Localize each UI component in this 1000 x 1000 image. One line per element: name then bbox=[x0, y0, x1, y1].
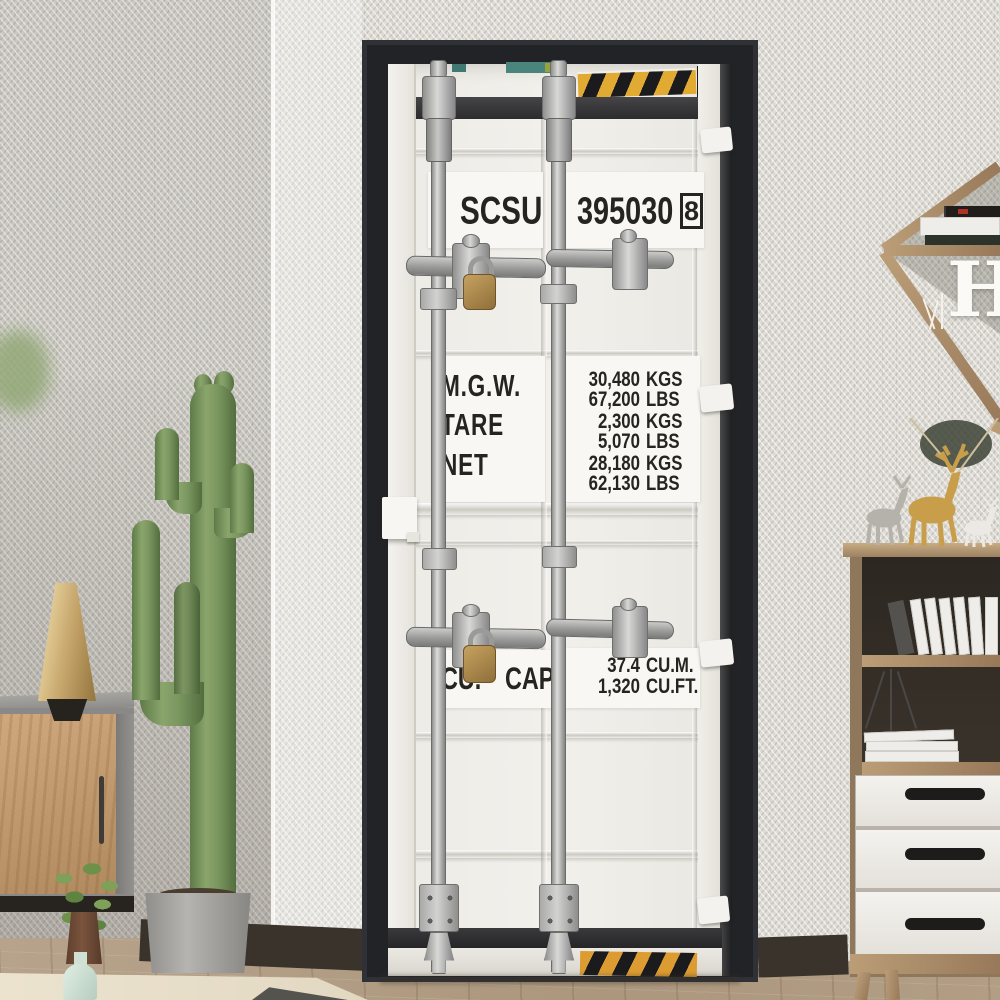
capacity-cubic-m-unit: CU.M. bbox=[646, 655, 698, 676]
cabinet-shelf-board bbox=[862, 655, 1000, 667]
lower-right-hasp bbox=[612, 606, 648, 658]
lock-rod-left bbox=[431, 66, 446, 972]
shelf-book-red-label bbox=[958, 209, 968, 214]
cactus-right-arm bbox=[230, 463, 254, 533]
upper-right-hasp-knob bbox=[620, 229, 637, 243]
cactus-left-long-arm bbox=[132, 520, 160, 700]
container-top-teal-1 bbox=[452, 64, 466, 72]
rod-right-bottom-bracket bbox=[539, 884, 579, 932]
capacity-units-column: CU.M. CU.FT. bbox=[646, 655, 698, 697]
weight-units-column: KGS LBS KGS LBS KGS LBS bbox=[646, 370, 682, 494]
lower-right-hasp-knob bbox=[620, 598, 637, 611]
rod-left-bottom-bracket bbox=[419, 884, 459, 932]
container-check-digit-box: 8 bbox=[680, 193, 703, 229]
cabinet-book-6 bbox=[985, 597, 998, 655]
lower-left-padlock-body bbox=[463, 645, 496, 683]
door-floor-shadow bbox=[380, 975, 740, 984]
capacity-label: CU. CAP. bbox=[441, 664, 558, 696]
drawer-1-handle bbox=[905, 788, 985, 800]
rod-left-upper-clamp bbox=[420, 288, 457, 310]
warning-tape-top bbox=[578, 68, 697, 98]
vase-mint-body bbox=[63, 964, 97, 1000]
upper-right-hasp bbox=[612, 238, 648, 290]
drawer-3-handle bbox=[905, 918, 985, 930]
cactus-pot bbox=[143, 893, 253, 973]
mgw-lbs-unit: LBS bbox=[646, 390, 682, 410]
cactus-left-upper-arm bbox=[155, 428, 179, 500]
container-owner-code: SCSU bbox=[460, 192, 542, 231]
sideboard-door-handle bbox=[99, 776, 104, 844]
rod-right-top-housing bbox=[542, 76, 576, 120]
rod-right-mid-clamp bbox=[542, 546, 577, 568]
net-kgs-unit: KGS bbox=[646, 454, 682, 474]
warning-tape-bottom bbox=[580, 951, 697, 977]
shelf-book-white bbox=[920, 217, 1000, 236]
upper-right-handle-bar bbox=[546, 249, 674, 269]
tare-lbs-value: 5,070 bbox=[570, 432, 640, 452]
rod-right-upper-clamp bbox=[540, 284, 577, 304]
silver-deer-figurine bbox=[867, 476, 910, 545]
capacity-cubic-ft-unit: CU.FT. bbox=[646, 676, 698, 697]
cabinet-drawer-top-board bbox=[862, 762, 1000, 775]
drawer-1 bbox=[856, 776, 1000, 826]
capacity-cubic-m-value: 37.4 bbox=[570, 655, 640, 676]
weight-values-column: 30,480 67,200 2,300 5,070 28,180 62,130 bbox=[570, 370, 640, 494]
deer-figurines bbox=[858, 418, 1000, 548]
lower-right-handle-bar bbox=[546, 618, 674, 639]
rod-right-top-hinge bbox=[546, 118, 572, 162]
upper-left-padlock-body bbox=[463, 274, 496, 310]
white-deer-figurine bbox=[965, 499, 997, 547]
door-hinge-tab-2 bbox=[699, 383, 735, 412]
drawer-2-handle bbox=[905, 848, 985, 860]
door-hinge-tab-4 bbox=[697, 895, 731, 924]
container-check-digit: 8 bbox=[684, 196, 699, 226]
mgw-kgs-value: 30,480 bbox=[570, 370, 640, 390]
net-lbs-unit: LBS bbox=[646, 474, 682, 494]
cabinet-leg-right bbox=[885, 970, 900, 1000]
upper-left-hasp-knob bbox=[462, 234, 480, 248]
capacity-values-column: 37.4 1,320 bbox=[570, 655, 640, 697]
door-right-shadow-gap bbox=[720, 64, 732, 976]
door-latch-lip bbox=[407, 532, 419, 542]
wire-bookend-mid bbox=[890, 669, 892, 731]
shelf-letter-decor: H bbox=[947, 252, 1000, 328]
cactus-front-arm bbox=[174, 582, 200, 694]
rod-left-mid-clamp bbox=[422, 548, 457, 570]
tare-kgs-value: 2,300 bbox=[570, 412, 640, 432]
rod-left-top-hinge bbox=[426, 118, 452, 162]
net-kgs-value: 28,180 bbox=[570, 454, 640, 474]
cabinet-base-board bbox=[850, 954, 1000, 974]
mgw-lbs-value: 67,200 bbox=[570, 390, 640, 410]
lower-left-hasp-knob bbox=[462, 604, 480, 617]
weight-label-tare: TARE bbox=[441, 411, 504, 441]
magazine-stack-mid bbox=[866, 741, 958, 751]
rod-left-top-housing bbox=[422, 76, 456, 120]
container-serial-number: 395030 bbox=[577, 192, 673, 230]
weight-label-net: NET bbox=[441, 451, 489, 481]
net-lbs-value: 62,130 bbox=[570, 474, 640, 494]
dried-sprig-2 bbox=[941, 293, 943, 329]
tare-kgs-unit: KGS bbox=[646, 412, 682, 432]
baseboard-right bbox=[757, 934, 848, 977]
room-scene: H bbox=[0, 0, 1000, 1000]
mgw-kgs-unit: KGS bbox=[646, 370, 682, 390]
door-hinge-tab-1 bbox=[700, 126, 733, 153]
wall-door-side-panel bbox=[275, 0, 362, 940]
weight-label-mgw: M.G.W. bbox=[441, 372, 521, 402]
lock-rod-right bbox=[551, 66, 566, 972]
door-hinge-tab-3 bbox=[699, 638, 735, 667]
tare-lbs-unit: LBS bbox=[646, 432, 682, 452]
magazine-stack-bottom bbox=[865, 751, 959, 762]
capacity-cubic-ft-value: 1,320 bbox=[570, 676, 640, 697]
